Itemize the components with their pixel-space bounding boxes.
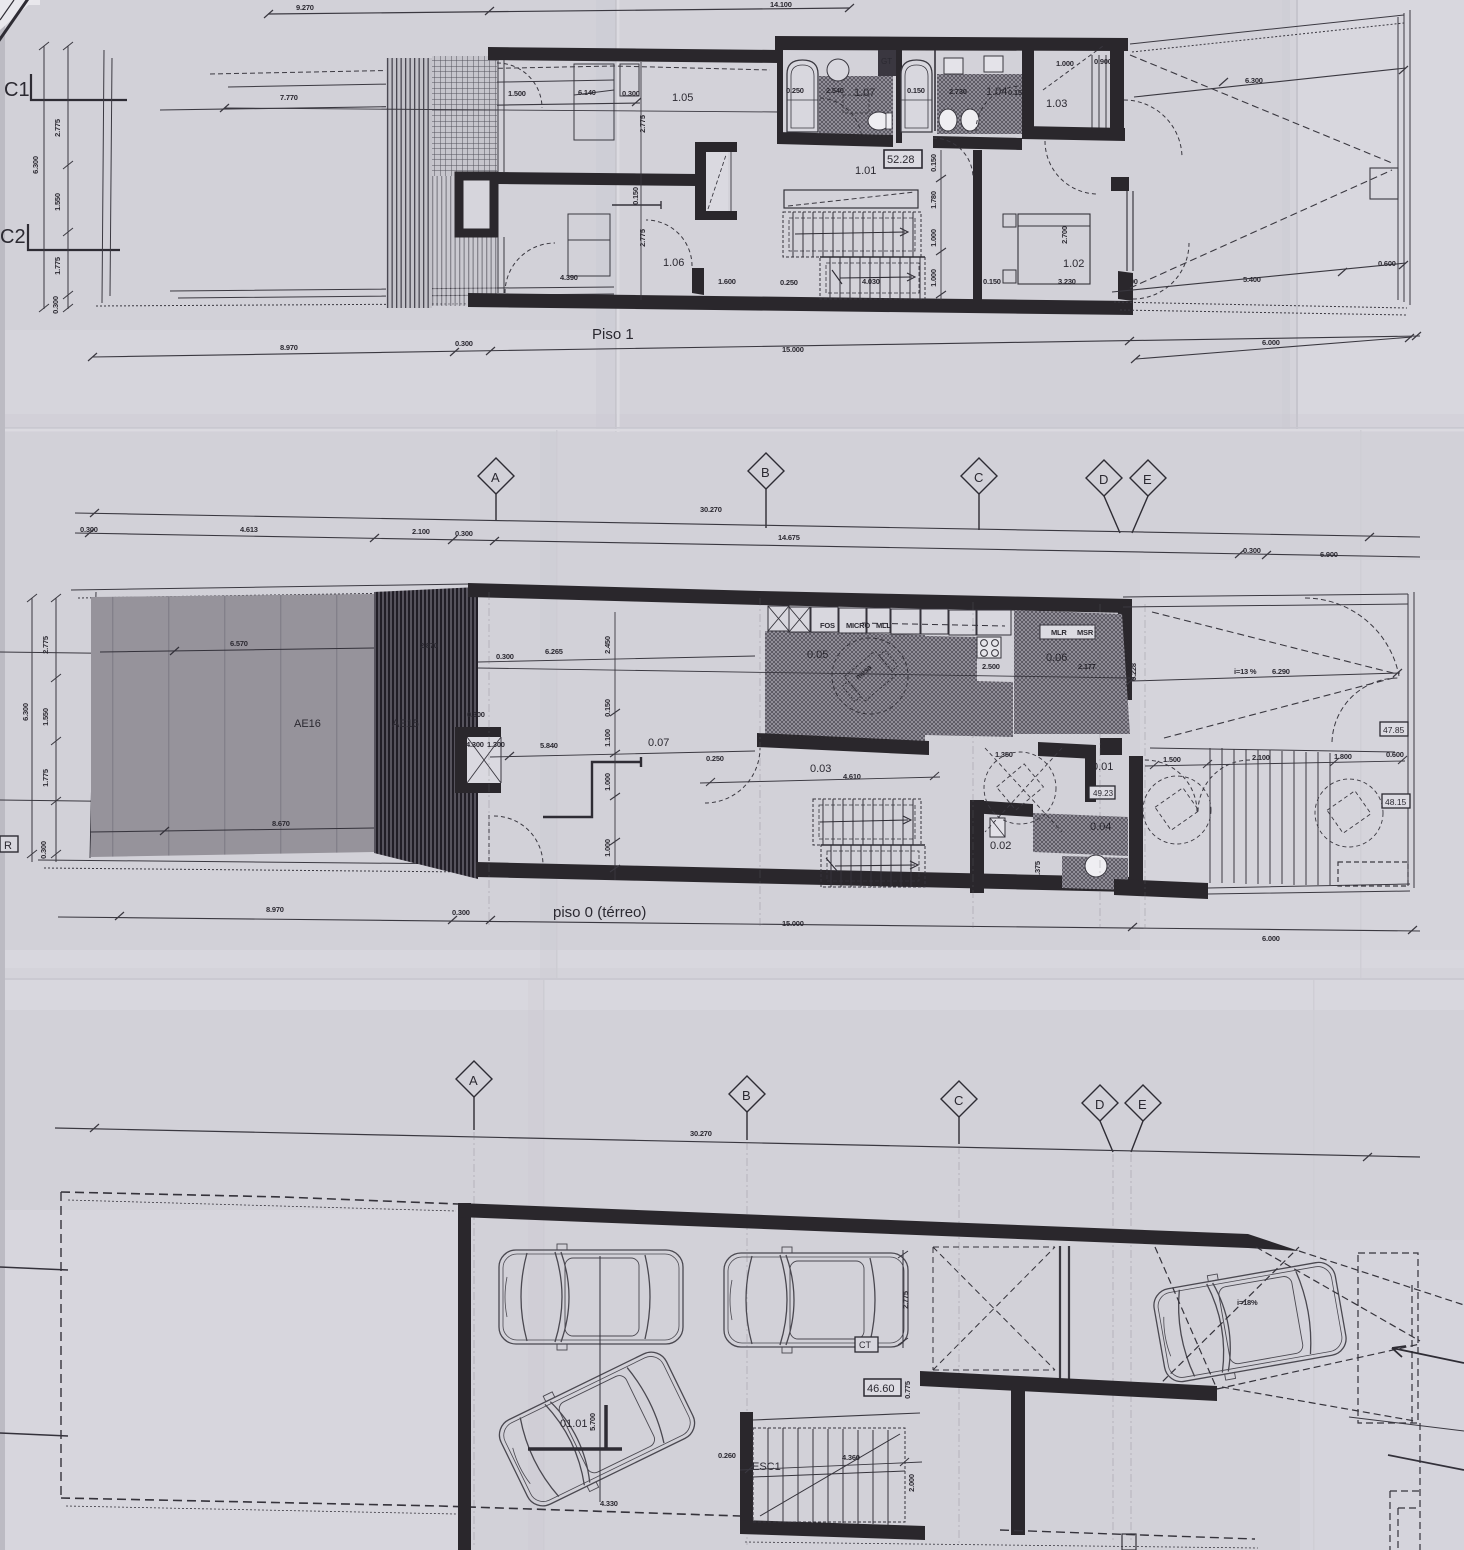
svg-text:0.775: 0.775 — [903, 1381, 912, 1399]
svg-text:piso 0 (térreo): piso 0 (térreo) — [553, 904, 646, 921]
svg-text:0.300: 0.300 — [39, 841, 48, 859]
svg-text:2.775: 2.775 — [638, 115, 647, 133]
svg-text:i=18%: i=18% — [1237, 1298, 1258, 1307]
svg-text:15.000: 15.000 — [782, 345, 804, 354]
svg-text:E: E — [1138, 1097, 1147, 1112]
svg-text:i=13 %: i=13 % — [1234, 667, 1257, 676]
svg-text:1.01: 1.01 — [855, 165, 876, 177]
svg-text:5.400: 5.400 — [1243, 275, 1261, 284]
svg-text:0.150: 0.150 — [603, 699, 612, 717]
svg-text:C: C — [954, 1093, 963, 1108]
svg-text:MSR: MSR — [1077, 628, 1094, 637]
svg-text:B: B — [761, 465, 770, 480]
svg-text:MICRO: MICRO — [846, 621, 870, 630]
svg-text:1.000: 1.000 — [929, 269, 938, 287]
svg-text:2.000: 2.000 — [907, 1474, 916, 1492]
svg-text:1.600: 1.600 — [718, 277, 736, 286]
svg-text:6.000: 6.000 — [1262, 934, 1280, 943]
svg-text:ESC1: ESC1 — [752, 1461, 781, 1473]
svg-text:0.600: 0.600 — [1378, 259, 1396, 268]
svg-text:1.000: 1.000 — [603, 773, 612, 791]
svg-text:1.000: 1.000 — [1056, 59, 1074, 68]
svg-text:6.570: 6.570 — [230, 639, 248, 648]
svg-text:2.730: 2.730 — [949, 87, 967, 96]
svg-text:6.265: 6.265 — [545, 647, 563, 656]
svg-text:2.775: 2.775 — [638, 229, 647, 247]
svg-text:6.000: 6.000 — [1262, 338, 1280, 347]
svg-text:0.300: 0.300 — [1243, 546, 1261, 555]
svg-text:30.270: 30.270 — [700, 505, 722, 514]
svg-text:2.100: 2.100 — [1252, 753, 1270, 762]
svg-text:1.07: 1.07 — [854, 87, 875, 99]
svg-text:1.500: 1.500 — [1163, 755, 1181, 764]
svg-text:0.300: 0.300 — [80, 525, 98, 534]
svg-text:AE16: AE16 — [294, 718, 321, 730]
svg-text:1.100: 1.100 — [603, 729, 612, 747]
svg-text:4.390: 4.390 — [560, 273, 578, 282]
svg-text:0.300: 0.300 — [622, 89, 640, 98]
svg-text:7.770: 7.770 — [280, 93, 298, 102]
svg-text:48.15: 48.15 — [1385, 797, 1407, 807]
svg-text:01.01: 01.01 — [560, 1418, 588, 1430]
svg-text:2.177: 2.177 — [1078, 662, 1096, 671]
svg-text:0.04: 0.04 — [1090, 821, 1111, 833]
svg-text:30.270: 30.270 — [690, 1129, 712, 1138]
svg-text:1.500: 1.500 — [508, 89, 526, 98]
svg-text:D: D — [1099, 472, 1108, 487]
svg-text:CT: CT — [859, 1340, 871, 1350]
svg-text:1.800: 1.800 — [1334, 752, 1352, 761]
svg-text:6.300: 6.300 — [1245, 76, 1263, 85]
svg-text:6.140: 6.140 — [578, 88, 596, 97]
svg-text:5.700: 5.700 — [588, 1413, 597, 1431]
svg-text:0.03: 0.03 — [810, 763, 831, 775]
svg-text:B: B — [742, 1088, 751, 1103]
svg-text:C: C — [974, 470, 983, 485]
svg-text:0.600: 0.600 — [1386, 750, 1404, 759]
svg-text:46.60: 46.60 — [867, 1383, 895, 1395]
svg-text:C1: C1 — [4, 79, 30, 101]
svg-text:4.360: 4.360 — [842, 1453, 860, 1462]
svg-text:GT: GT — [881, 57, 892, 66]
svg-text:1.775: 1.775 — [53, 257, 62, 275]
svg-text:0.300: 0.300 — [452, 908, 470, 917]
svg-text:0.300: 0.300 — [51, 296, 60, 314]
svg-text:Piso 1: Piso 1 — [592, 326, 634, 343]
svg-text:4.613: 4.613 — [240, 525, 258, 534]
svg-text:3.230: 3.230 — [1058, 277, 1076, 286]
svg-text:0.300: 0.300 — [455, 529, 473, 538]
svg-text:0.07: 0.07 — [648, 737, 669, 749]
svg-text:0.150: 0.150 — [983, 277, 1001, 286]
svg-text:E: E — [1143, 472, 1152, 487]
svg-text:14.100: 14.100 — [770, 0, 792, 9]
svg-text:0.150: 0.150 — [631, 187, 640, 205]
svg-text:AE15: AE15 — [392, 718, 419, 730]
svg-text:0.300: 0.300 — [467, 710, 485, 719]
svg-text:0.300: 0.300 — [455, 339, 473, 348]
svg-text:6.900: 6.900 — [1320, 550, 1338, 559]
svg-text:C2: C2 — [0, 226, 26, 248]
svg-text:2.500: 2.500 — [982, 662, 1000, 671]
svg-text:1.04: 1.04 — [986, 86, 1007, 98]
svg-text:1.02: 1.02 — [1063, 258, 1084, 270]
svg-text:1.375: 1.375 — [1033, 861, 1042, 879]
svg-text:1.775: 1.775 — [41, 769, 50, 787]
svg-text:A: A — [491, 470, 500, 485]
svg-text:2.775: 2.775 — [53, 119, 62, 137]
svg-text:6.300: 6.300 — [31, 156, 40, 174]
svg-text:FOS: FOS — [820, 621, 835, 630]
svg-text:2.700: 2.700 — [1060, 226, 1069, 244]
svg-text:0.01: 0.01 — [1092, 761, 1113, 773]
svg-text:0.300: 0.300 — [496, 652, 514, 661]
svg-text:2.450: 2.450 — [603, 636, 612, 654]
svg-text:1.300: 1.300 — [487, 740, 505, 749]
svg-text:1.000: 1.000 — [929, 229, 938, 247]
svg-text:D: D — [1095, 1097, 1104, 1112]
svg-text:0.250: 0.250 — [706, 754, 724, 763]
svg-text:1.550: 1.550 — [53, 193, 62, 211]
svg-text:4.330: 4.330 — [600, 1499, 618, 1508]
svg-text:2.870: 2.870 — [420, 641, 438, 650]
svg-text:MLR: MLR — [1051, 628, 1067, 637]
svg-text:2.775: 2.775 — [41, 636, 50, 654]
svg-text:1.780: 1.780 — [929, 191, 938, 209]
svg-text:1.550: 1.550 — [41, 708, 50, 726]
svg-text:15.000: 15.000 — [782, 919, 804, 928]
svg-text:1.06: 1.06 — [663, 257, 684, 269]
svg-text:1.03: 1.03 — [1046, 98, 1067, 110]
svg-text:0.260: 0.260 — [718, 1451, 736, 1460]
svg-text:0.06: 0.06 — [1046, 652, 1067, 664]
svg-text:52.28: 52.28 — [887, 154, 915, 166]
svg-text:8.670: 8.670 — [272, 819, 290, 828]
svg-text:5.840: 5.840 — [540, 741, 558, 750]
svg-text:0.150: 0.150 — [907, 86, 925, 95]
svg-text:MLL: MLL — [876, 621, 891, 630]
svg-text:0.02: 0.02 — [990, 840, 1011, 852]
svg-text:14.675: 14.675 — [778, 533, 800, 542]
svg-text:8.970: 8.970 — [280, 343, 298, 352]
svg-text:1.350: 1.350 — [995, 750, 1013, 759]
svg-text:0.150: 0.150 — [929, 154, 938, 172]
svg-text:6.290: 6.290 — [1272, 667, 1290, 676]
svg-text:0.250: 0.250 — [780, 278, 798, 287]
svg-text:6.300: 6.300 — [21, 703, 30, 721]
svg-text:9.270: 9.270 — [296, 3, 314, 12]
svg-text:4.030: 4.030 — [862, 277, 880, 286]
svg-text:2.540: 2.540 — [826, 86, 844, 95]
svg-text:47.85: 47.85 — [1383, 725, 1405, 735]
svg-text:0.900: 0.900 — [1094, 57, 1112, 66]
svg-text:1.000: 1.000 — [603, 839, 612, 857]
svg-text:49.23: 49.23 — [1093, 789, 1114, 798]
svg-text:0.05: 0.05 — [807, 649, 828, 661]
svg-text:2.100: 2.100 — [412, 527, 430, 536]
svg-text:R: R — [4, 840, 12, 852]
svg-text:8.970: 8.970 — [266, 905, 284, 914]
svg-text:1.05: 1.05 — [672, 92, 693, 104]
svg-text:2.775: 2.775 — [901, 1291, 910, 1309]
svg-text:A: A — [469, 1073, 478, 1088]
svg-text:4.300: 4.300 — [466, 740, 484, 749]
svg-text:0.250: 0.250 — [786, 86, 804, 95]
